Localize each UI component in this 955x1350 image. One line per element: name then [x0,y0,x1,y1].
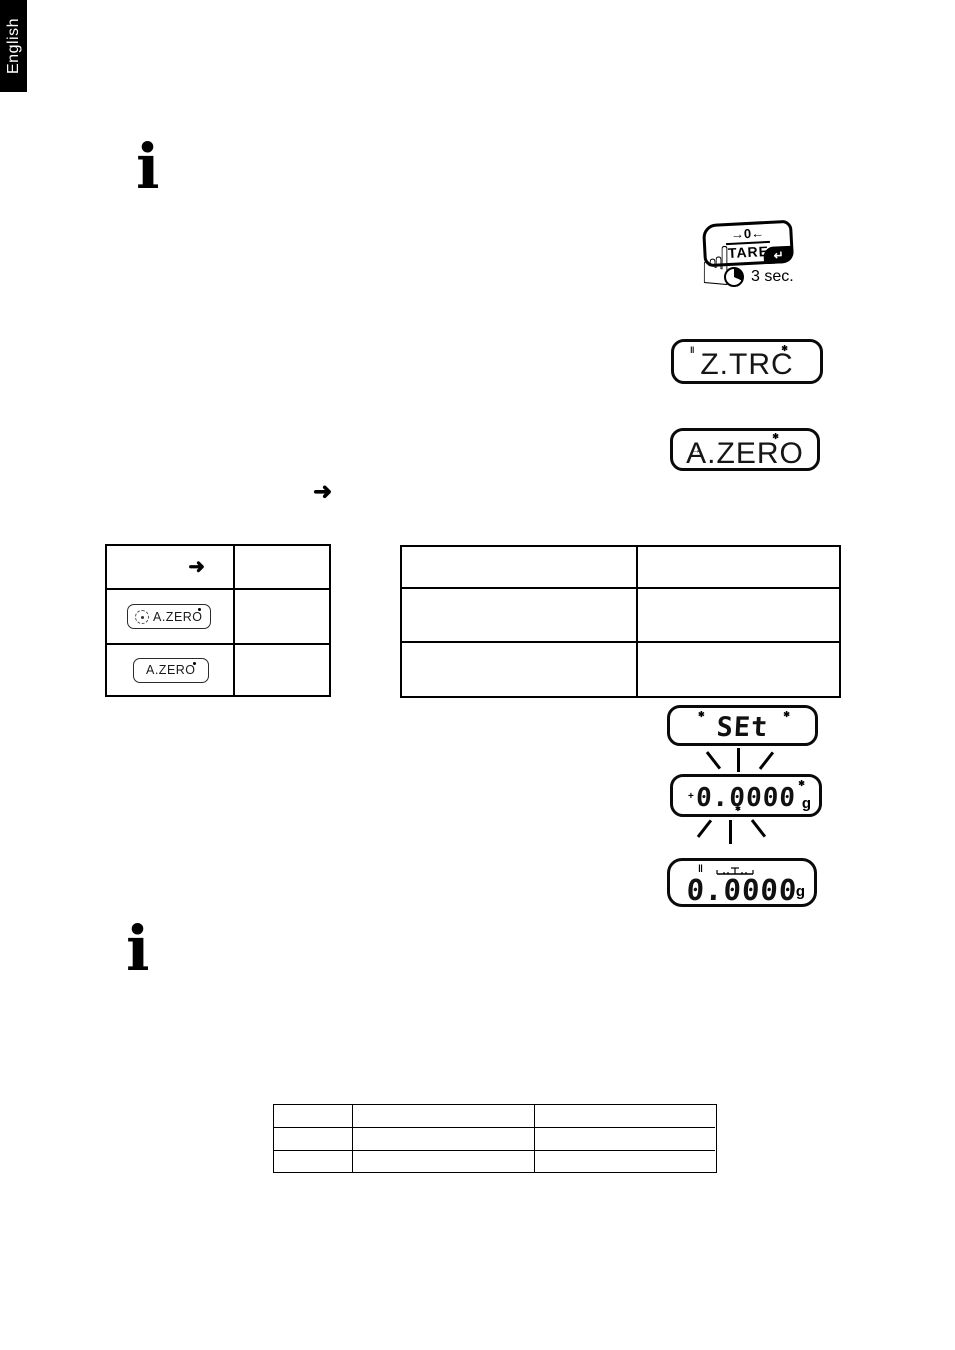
set-text: SEt [669,712,816,743]
table-cell-empty [402,589,638,643]
table-cell-empty [274,1128,353,1151]
stable-value: 0.0000 [669,873,815,907]
enter-corner: ↵ [763,246,794,265]
blink-ray [759,751,774,769]
flow-arrow-icon: ➜ [313,480,332,503]
flashing-value: 0.0000 [672,783,820,813]
table-cell-empty [235,645,331,695]
display-zero-stable: ‖ 0.0000 g [667,858,817,907]
annunciator-dot-icon [193,662,196,665]
blink-ray [737,748,740,772]
blink-ray [751,819,766,837]
table-cell-empty [235,546,331,590]
table-cell-empty [235,590,331,645]
table-cell-azero-on: A.ZERO [107,590,235,645]
info-icon: i [126,918,150,980]
blink-ray [697,819,712,837]
blink-ray [706,751,721,769]
table-cell-arrow: ➜ [107,546,235,590]
table-cell-empty [353,1151,535,1172]
manual-page: English i →0← TARE ↵ ☝ 3 sec. ‖ ✱ Z.TRC … [0,0,955,1350]
display-ztrc: ‖ ✱ Z.TRC [671,339,823,384]
clock-icon [724,267,744,287]
table-cell-empty [535,1151,715,1172]
description-table-right [400,545,841,698]
table-cell-empty [638,547,839,589]
display-set: ✱ ✱ SEt [667,705,818,746]
arrow-key-icon: ➜ [188,557,205,577]
mini-display-azero-off: A.ZERO [133,658,209,683]
display-azero: → ✱ A.ZERO [670,428,820,471]
unit-label: g [802,795,811,812]
language-tab-label: English [5,18,23,74]
mini-display-text: A.ZERO [146,663,196,677]
enter-icon: ↵ [773,249,784,262]
display-zero-flashing: + ✱ ✱ 0.0000 g [670,774,822,817]
table-cell-empty [402,547,638,589]
settings-table-left: ➜ A.ZERO A.ZERO [105,544,331,697]
unit-label: g [796,883,805,900]
blink-ray [729,820,732,844]
table-cell-empty [638,589,839,643]
table-cell-azero-off: A.ZERO [107,645,235,695]
mini-display-text: A.ZERO [153,610,203,624]
hand-press-icon: ☝ [700,240,733,294]
table-cell-empty [274,1151,353,1172]
table-cell-empty [353,1105,535,1128]
ztrc-text: Z.TRC [674,348,820,382]
table-cell-empty [535,1128,715,1151]
table-cell-empty [353,1128,535,1151]
table-cell-empty [402,643,638,696]
azero-text: A.ZERO [673,437,817,471]
table-cell-empty [274,1105,353,1128]
settings-table-bottom [273,1104,717,1173]
auto-zero-circle-icon [135,610,149,624]
table-cell-empty [638,643,839,696]
info-icon: i [136,136,160,198]
table-cell-empty [535,1105,715,1128]
hold-duration-label: 3 sec. [751,268,794,286]
annunciator-dot-icon [198,608,201,611]
mini-display-azero-on: A.ZERO [127,604,211,629]
language-tab: English [0,0,27,92]
